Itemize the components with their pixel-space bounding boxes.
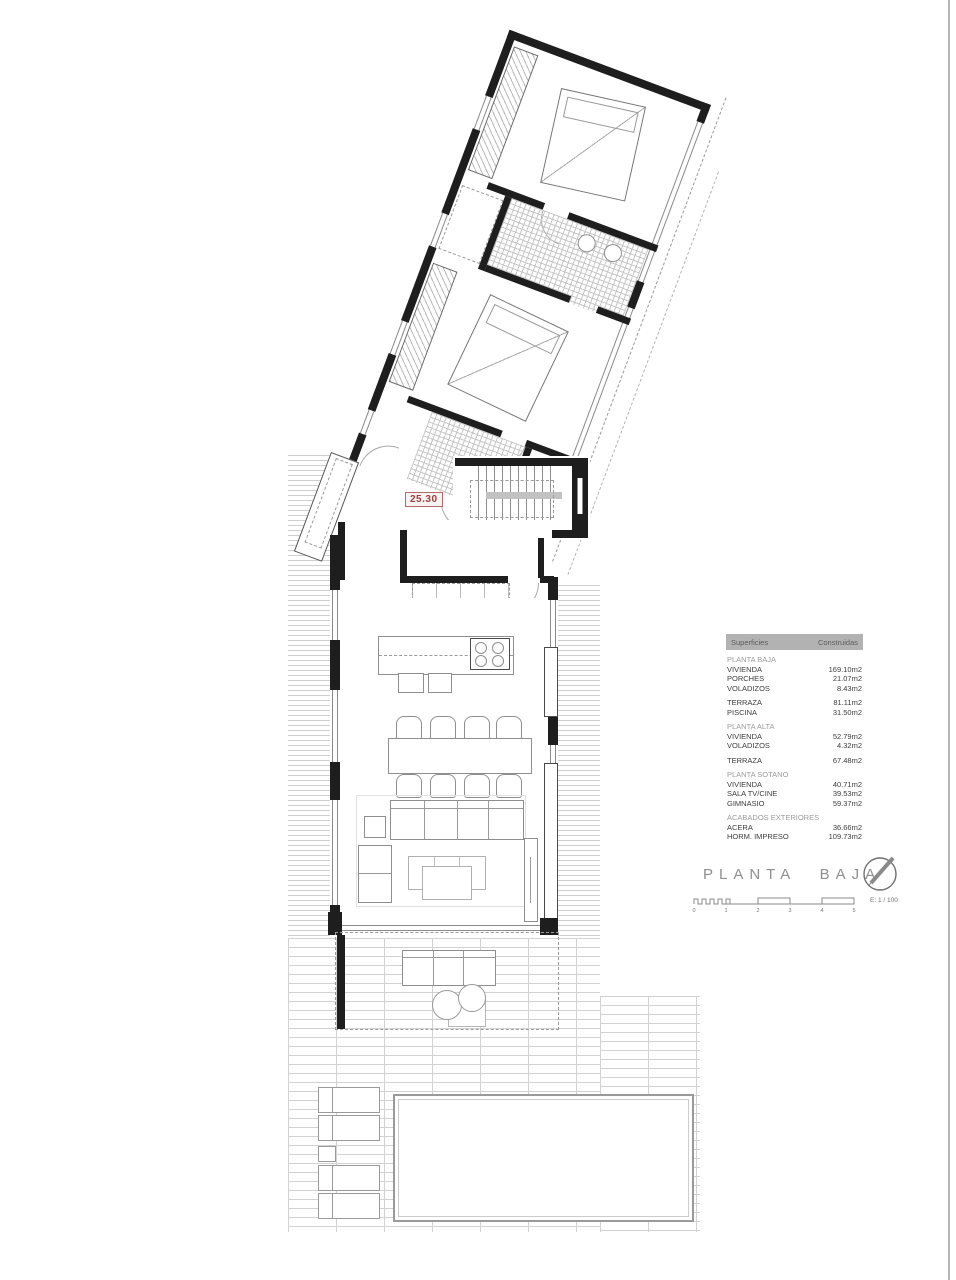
legend-row: VIVIENDA52.79m2 xyxy=(726,732,863,742)
burner xyxy=(492,642,504,654)
sofa xyxy=(390,800,524,840)
row-label: PORCHES xyxy=(727,674,764,684)
legend-row: VOLADIZOS8.43m2 xyxy=(726,684,863,694)
sliding-door-frame xyxy=(544,763,558,925)
legend-row: HORM. IMPRESO109.73m2 xyxy=(726,832,863,842)
floor-plan-sheet: 25.30 xyxy=(0,0,956,1280)
row-value: 39.53m2 xyxy=(833,789,862,799)
stair-top-wall xyxy=(455,458,572,466)
legend-row: TERRAZA81.11m2 xyxy=(726,698,863,708)
scale-tick: 2 xyxy=(756,908,759,914)
dining-chair xyxy=(430,716,456,740)
dimension-label: 25.30 xyxy=(405,492,443,507)
cooktop xyxy=(470,638,510,670)
dining-table xyxy=(388,738,532,774)
sun-lounger xyxy=(318,1165,380,1191)
row-label: VIVIENDA xyxy=(727,780,762,790)
bed-pillow xyxy=(485,304,561,355)
row-label: SALA TV/CINE xyxy=(727,789,777,799)
legend-row: SALA TV/CINE39.53m2 xyxy=(726,789,863,799)
outdoor-pouf xyxy=(458,984,486,1012)
sun-lounger xyxy=(318,1115,380,1141)
section-label: PLANTA ALTA xyxy=(727,722,775,732)
legend-header-col1: Superficies xyxy=(731,638,768,647)
legend-row: VOLADIZOS4.32m2 xyxy=(726,741,863,751)
legend-row: PORCHES21.07m2 xyxy=(726,674,863,684)
pool xyxy=(393,1094,694,1222)
row-label: GIMNASIO xyxy=(727,799,765,809)
stair-upper-flight xyxy=(470,480,554,518)
section-label: ACABADOS EXTERIORES xyxy=(727,813,819,823)
row-value: 21.07m2 xyxy=(833,674,862,684)
burner xyxy=(475,642,487,654)
section-label: PLANTA BAJA xyxy=(727,655,776,665)
sheet-border xyxy=(948,0,950,1280)
row-value: 59.37m2 xyxy=(833,799,862,809)
terrace-right-deck xyxy=(558,585,600,938)
row-value: 67.48m2 xyxy=(833,756,862,766)
legend-header: Superficies Construidas xyxy=(726,634,863,650)
section-label: PLANTA SOTANO xyxy=(727,770,788,780)
left-window xyxy=(332,690,338,762)
stair-window xyxy=(577,478,583,514)
row-label: ACERA xyxy=(727,823,753,833)
row-value: 36.66m2 xyxy=(833,823,862,833)
row-value: 81.11m2 xyxy=(833,698,862,708)
row-value: 8.43m2 xyxy=(837,684,862,694)
scale-tick: 0 xyxy=(692,908,695,914)
burner xyxy=(492,655,504,667)
legend-row: TERRAZA67.48m2 xyxy=(726,756,863,766)
row-label: TERRAZA xyxy=(727,756,762,766)
legend-section: PLANTA BAJA xyxy=(726,655,863,665)
legend-row: PISCINA31.50m2 xyxy=(726,708,863,718)
coffee-table xyxy=(422,866,472,900)
legend-row: VIVIENDA40.71m2 xyxy=(726,780,863,790)
sofa-back-line xyxy=(391,808,523,809)
row-value: 40.71m2 xyxy=(833,780,862,790)
row-value: 31.50m2 xyxy=(833,708,862,718)
areas-legend: Superficies Construidas PLANTA BAJA VIVI… xyxy=(726,634,863,842)
scale-tick: 4 xyxy=(820,908,823,914)
side-table xyxy=(364,816,386,838)
row-label: TERRAZA xyxy=(727,698,762,708)
row-label: PISCINA xyxy=(727,708,757,718)
bottom-window-wall xyxy=(340,925,548,931)
wall-stub xyxy=(538,538,544,578)
plan-title: PLANTA BAJA xyxy=(703,866,881,883)
chaise-line xyxy=(359,873,391,874)
row-label: VOLADIZOS xyxy=(727,741,770,751)
left-wall xyxy=(330,640,340,690)
dining-chair xyxy=(396,716,422,740)
lounger-side-table xyxy=(318,1146,336,1162)
scale-bar: 0 1 2 3 4 5 xyxy=(692,892,870,914)
legend-row: VIVIENDA169.10m2 xyxy=(726,665,863,675)
legend-header-col2: Construidas xyxy=(818,638,858,647)
scale-tick: 3 xyxy=(788,908,791,914)
bed-pillow xyxy=(563,96,639,132)
north-compass-icon xyxy=(856,850,904,898)
kitchen-cabinet xyxy=(428,673,452,693)
bed xyxy=(540,88,646,202)
legend-row: GIMNASIO59.37m2 xyxy=(726,799,863,809)
row-value: 52.79m2 xyxy=(833,732,862,742)
left-wall xyxy=(330,762,340,800)
tv-bench xyxy=(524,838,538,922)
row-label: VOLADIZOS xyxy=(727,684,770,694)
scale-ratio-label: E: 1 / 100 xyxy=(870,897,898,904)
legend-row: ACERA36.66m2 xyxy=(726,823,863,833)
scale-tick: 5 xyxy=(852,908,855,914)
dining-chair xyxy=(464,716,490,740)
hall-wall xyxy=(400,530,407,582)
dining-chair xyxy=(496,716,522,740)
sofa-cushion-line xyxy=(488,801,489,839)
door-swing xyxy=(359,437,399,477)
row-value: 4.32m2 xyxy=(837,741,862,751)
wing-left-window xyxy=(360,409,374,435)
right-wall xyxy=(548,577,558,600)
sliding-door-frame xyxy=(544,647,558,717)
row-label: VIVIENDA xyxy=(727,732,762,742)
left-window xyxy=(332,800,338,905)
scale-tick: 1 xyxy=(724,908,727,914)
bed xyxy=(447,294,569,422)
sofa-cushion-line xyxy=(457,801,458,839)
outdoor-sofa xyxy=(402,950,496,986)
kitchen-cabinet xyxy=(398,673,424,693)
row-value: 109.73m2 xyxy=(829,832,862,842)
burner xyxy=(475,655,487,667)
sun-lounger xyxy=(318,1193,380,1219)
row-label: HORM. IMPRESO xyxy=(727,832,789,842)
outdoor-sofa-cushion xyxy=(433,951,434,985)
tv-line xyxy=(530,857,531,903)
left-window xyxy=(332,590,338,640)
row-label: VIVIENDA xyxy=(727,665,762,675)
legend-section: ACABADOS EXTERIORES xyxy=(726,813,863,823)
row-value: 169.10m2 xyxy=(829,665,862,675)
legend-section: PLANTA SOTANO xyxy=(726,770,863,780)
armchair-chaise xyxy=(358,845,392,903)
outdoor-sofa-cushion xyxy=(463,951,464,985)
sun-lounger xyxy=(318,1087,380,1113)
outdoor-sofa-back xyxy=(403,957,495,958)
sofa-cushion-line xyxy=(424,801,425,839)
legend-section: PLANTA ALTA xyxy=(726,722,863,732)
left-wall xyxy=(330,535,340,590)
hall-wall xyxy=(400,576,508,583)
